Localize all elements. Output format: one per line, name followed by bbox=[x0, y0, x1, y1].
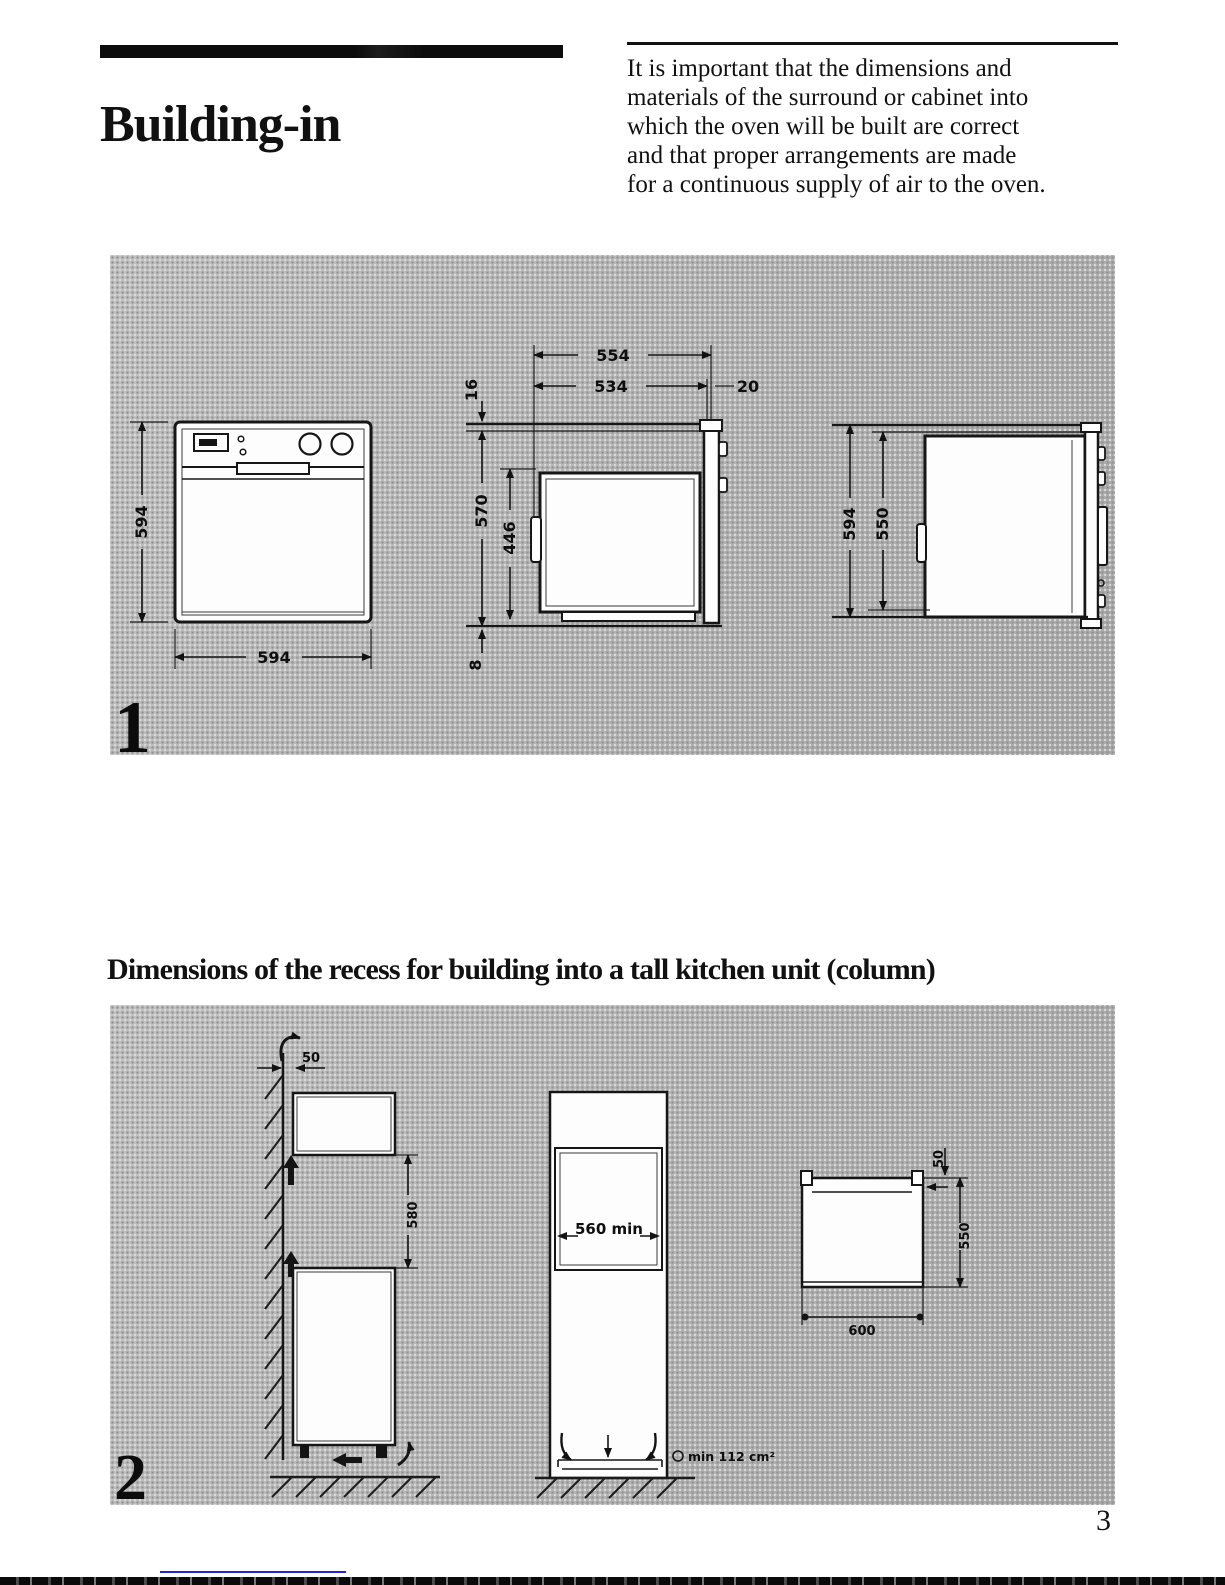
intro-line: which the oven will be built are correct bbox=[627, 112, 1127, 141]
dim-front-width: 594 bbox=[175, 629, 371, 669]
svg-text:550: 550 bbox=[873, 507, 892, 540]
intro-line: for a continuous supply of air to the ov… bbox=[627, 170, 1127, 199]
svg-text:560 min: 560 min bbox=[575, 1220, 643, 1238]
scan-artifact-blue-line bbox=[160, 1571, 346, 1573]
section-heading: Dimensions of the recess for building in… bbox=[107, 953, 935, 987]
oven-rear-view: 594 550 bbox=[832, 423, 1107, 628]
page-number: 3 bbox=[1096, 1504, 1111, 1538]
oven-side-view: 554 534 20 16 bbox=[462, 345, 759, 671]
dim-rear-gap: 50 bbox=[927, 1148, 948, 1187]
oven-housing-unit bbox=[293, 1268, 395, 1445]
figure1-drawing: 594 594 554 bbox=[110, 255, 1115, 755]
intro-paragraph: It is important that the dimensions and … bbox=[627, 54, 1127, 199]
plinth-arrow bbox=[332, 1453, 362, 1467]
tall-column-view: 560 min mi bbox=[535, 1092, 775, 1498]
dim-height-overall: 570 bbox=[472, 431, 491, 626]
control-knob bbox=[332, 434, 353, 455]
svg-text:550: 550 bbox=[958, 1222, 973, 1249]
intro-rule bbox=[627, 42, 1118, 45]
control-knob bbox=[300, 434, 321, 455]
figure1-oven-dimensions: 594 594 554 bbox=[110, 255, 1115, 755]
svg-text:580: 580 bbox=[406, 1201, 421, 1228]
dim-depth-overall: 554 bbox=[534, 346, 711, 365]
intro-line: and that proper arrangements are made bbox=[627, 141, 1127, 170]
svg-text:min 112 cm²: min 112 cm² bbox=[688, 1449, 775, 1464]
dim-plan-depth: 550 bbox=[923, 1178, 973, 1287]
svg-text:20: 20 bbox=[737, 377, 759, 396]
svg-text:594: 594 bbox=[132, 505, 151, 538]
unit-foot bbox=[300, 1445, 309, 1458]
dim-recess-height: 580 bbox=[395, 1155, 421, 1268]
recess-plan bbox=[802, 1178, 923, 1287]
svg-text:534: 534 bbox=[594, 377, 627, 396]
hinge-lug bbox=[917, 524, 926, 562]
figure1-label: 1 bbox=[114, 691, 151, 765]
plan-view: 50 550 600 bbox=[801, 1148, 973, 1339]
dim-top-clearance: 16 bbox=[462, 379, 482, 421]
manual-page: Building-in It is important that the dim… bbox=[0, 0, 1225, 1585]
svg-text:570: 570 bbox=[472, 494, 491, 527]
wall-section-view: 50 580 bbox=[257, 1037, 440, 1497]
floor-hatching bbox=[270, 1477, 440, 1497]
svg-text:16: 16 bbox=[462, 379, 481, 401]
figure2-drawing: 50 580 bbox=[110, 1005, 1115, 1505]
oven-door bbox=[704, 425, 719, 623]
svg-text:594: 594 bbox=[840, 507, 859, 540]
door-handle bbox=[237, 463, 309, 474]
figure2-label: 2 bbox=[114, 1445, 147, 1511]
wall-hatching bbox=[265, 1075, 283, 1459]
page-title: Building-in bbox=[100, 95, 340, 154]
svg-text:594: 594 bbox=[257, 648, 290, 667]
airflow-arrow-bottom bbox=[398, 1442, 410, 1465]
unit-foot bbox=[376, 1445, 387, 1458]
dim-front-height: 594 bbox=[130, 422, 168, 622]
airflow-arrow-up bbox=[283, 1155, 299, 1185]
dim-plan-width: 600 bbox=[802, 1287, 924, 1339]
intro-line: materials of the surround or cabinet int… bbox=[627, 83, 1127, 112]
floor-hatching bbox=[535, 1478, 695, 1498]
vent-area-note: min 112 cm² bbox=[673, 1449, 775, 1464]
dim-depth-body: 534 20 bbox=[534, 377, 759, 396]
title-rule-bar bbox=[100, 45, 563, 58]
figure2-recess-dimensions: 50 580 bbox=[110, 1005, 1115, 1505]
svg-text:8: 8 bbox=[466, 659, 485, 670]
svg-text:446: 446 bbox=[500, 521, 519, 554]
dim-rear-height-overall: 594 bbox=[840, 425, 859, 617]
dim-wall-gap: 50 bbox=[257, 1051, 325, 1068]
base-rail bbox=[562, 612, 695, 621]
dim-bottom-clearance: 8 bbox=[466, 630, 485, 671]
svg-text:554: 554 bbox=[596, 346, 629, 365]
vent-area-icon bbox=[673, 1451, 683, 1461]
svg-text:600: 600 bbox=[848, 1324, 875, 1339]
scan-artifact-bottom-edge bbox=[0, 1577, 1225, 1585]
upper-cupboard bbox=[293, 1093, 395, 1155]
oven-front-view: 594 594 bbox=[130, 422, 371, 669]
hinge-lug bbox=[531, 517, 541, 562]
intro-line: It is important that the dimensions and bbox=[627, 54, 1127, 83]
oven-door bbox=[1085, 427, 1098, 621]
oven-recess bbox=[555, 1148, 662, 1270]
svg-text:50: 50 bbox=[302, 1051, 320, 1066]
dim-rear-height-body: 550 bbox=[873, 432, 892, 610]
svg-text:50: 50 bbox=[932, 1150, 947, 1168]
